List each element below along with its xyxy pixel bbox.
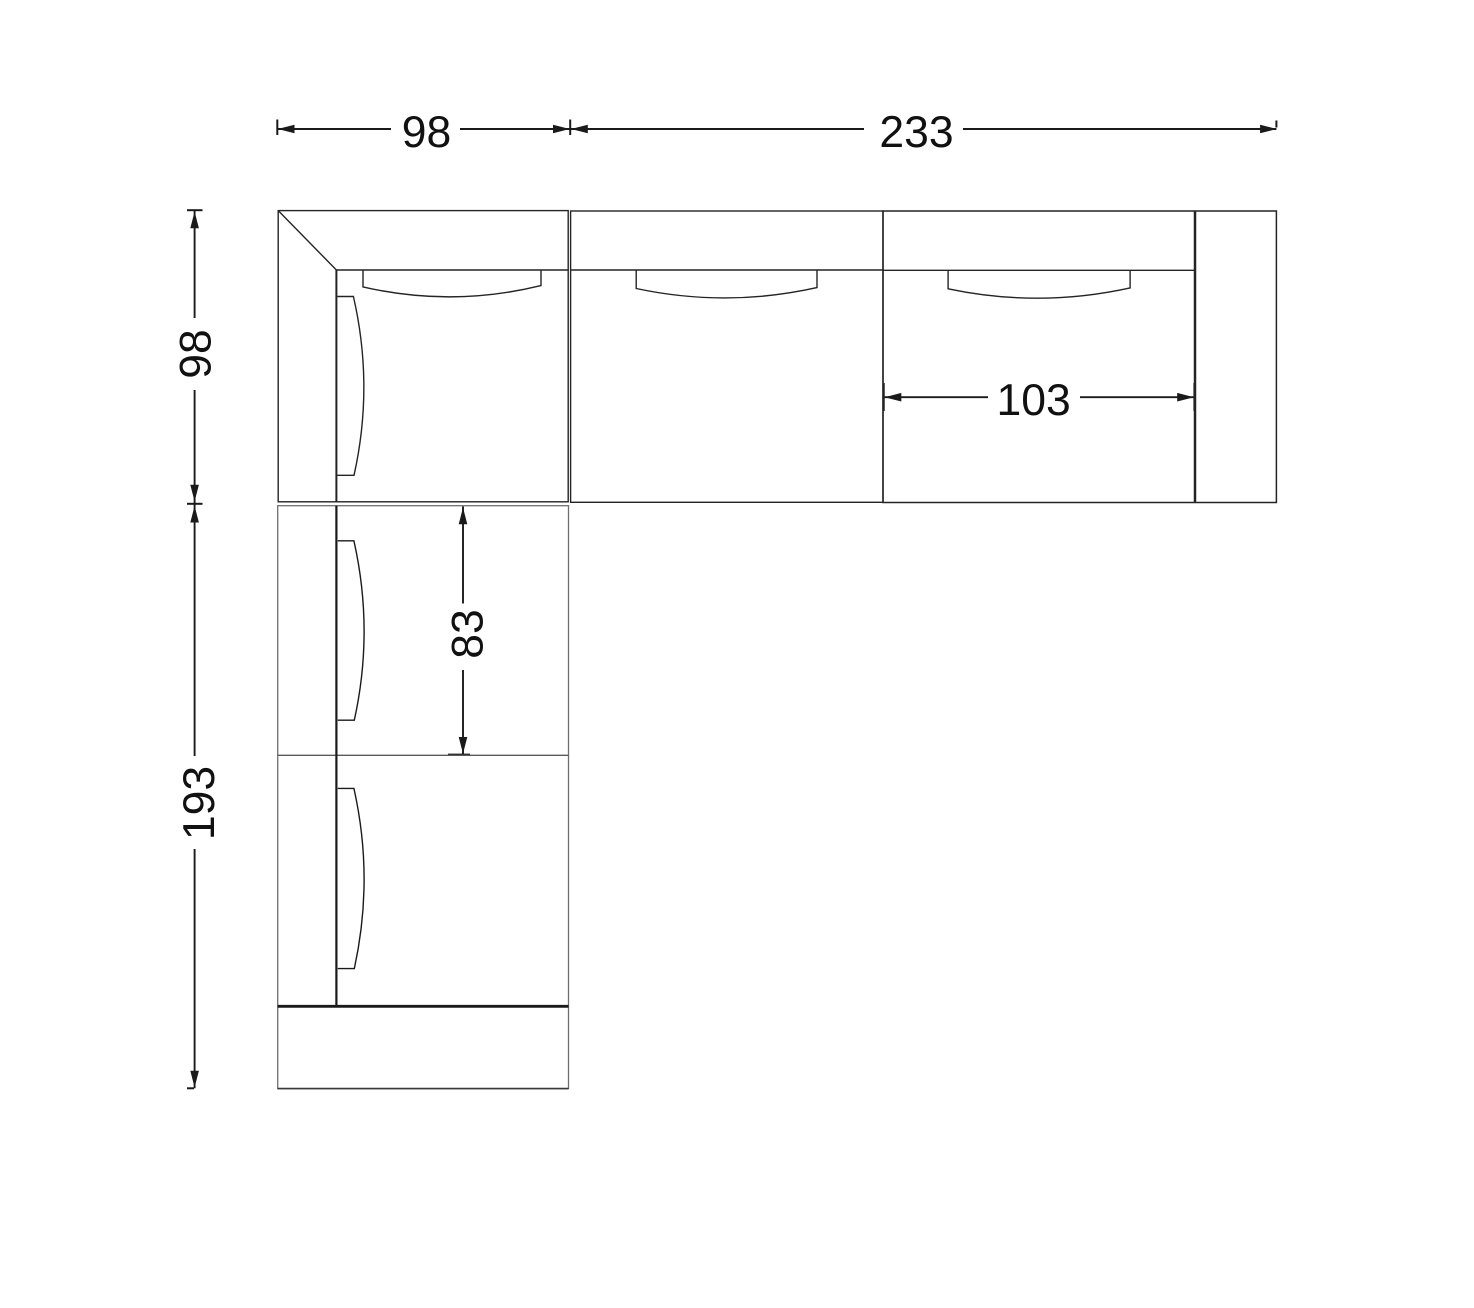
svg-text:193: 193: [175, 766, 224, 840]
svg-text:103: 103: [996, 376, 1070, 425]
svg-text:233: 233: [879, 108, 953, 157]
svg-text:98: 98: [402, 108, 452, 157]
svg-text:98: 98: [172, 329, 221, 379]
svg-text:83: 83: [444, 609, 493, 659]
